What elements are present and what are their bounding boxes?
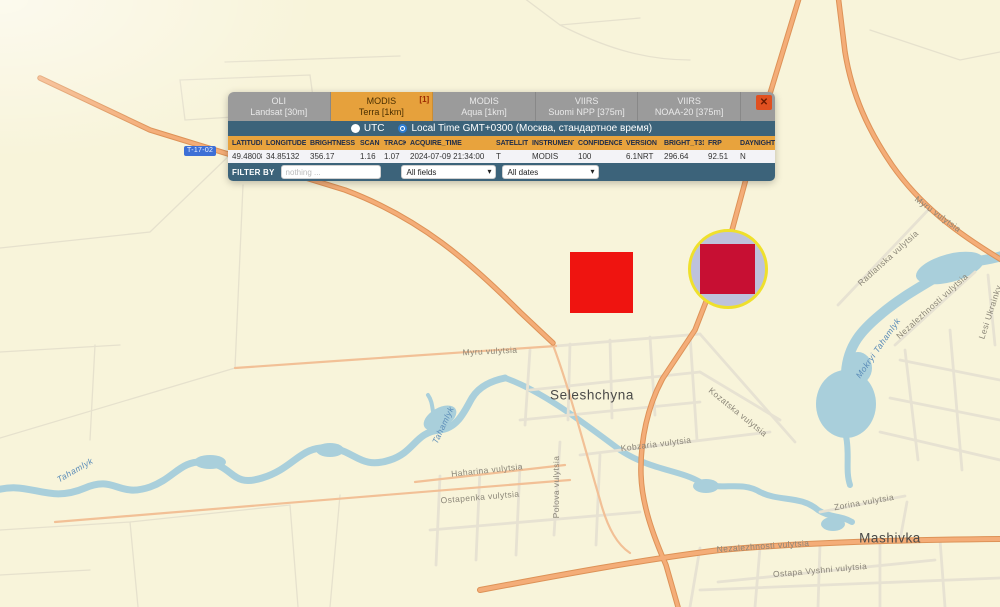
close-cell: ✕ [741, 92, 775, 121]
pass-tag: T-17-02 [184, 146, 216, 156]
tab-modis-terra[interactable]: [1] MODIS Terra [1km] [331, 92, 434, 121]
utc-radio-option[interactable]: UTC [351, 123, 385, 134]
cell-brightness: 356.17 [306, 152, 356, 161]
fire-marker[interactable] [570, 252, 633, 313]
tab-modis-aqua[interactable]: MODIS Aqua [1km] [433, 92, 536, 121]
close-icon[interactable]: ✕ [756, 95, 772, 110]
col-longitude[interactable]: LONGITUDE [262, 140, 306, 147]
cell-frp: 92.51 [704, 152, 736, 161]
filter-row: FILTER BY All fields ▾ All dates ▾ [228, 163, 775, 181]
col-brightness[interactable]: BRIGHTNESS [306, 140, 356, 147]
cell-daynight: N [736, 152, 775, 161]
chevron-down-icon: ▾ [591, 167, 595, 176]
col-satellite[interactable]: SATELLITE [492, 140, 528, 147]
local-time-radio-option[interactable]: Local Time GMT+0300 (Москва, стандартное… [398, 123, 652, 134]
cell-longitude: 34.85132 [262, 152, 306, 161]
table-header-row: LATITUDE LONGITUDE BRIGHTNESS SCAN TRACK… [228, 136, 775, 150]
cell-instrument: MODIS [528, 152, 574, 161]
cell-scan: 1.16 [356, 152, 380, 161]
col-bright-t31[interactable]: BRIGHT_T31 [660, 140, 704, 147]
tab-oli-landsat[interactable]: OLI Landsat [30m] [228, 92, 331, 121]
selected-fire-marker[interactable] [700, 244, 755, 294]
col-confidence[interactable]: CONFIDENCE [574, 140, 622, 147]
col-latitude[interactable]: LATITUDE [228, 140, 262, 147]
col-frp[interactable]: FRP [704, 140, 736, 147]
time-mode-row: UTC Local Time GMT+0300 (Москва, стандар… [228, 121, 775, 136]
sensor-tabbar: OLI Landsat [30m] [1] MODIS Terra [1km] … [228, 92, 775, 121]
radio-icon-utc[interactable] [351, 124, 360, 133]
firms-fire-map-screen: Myru vulytsia Myru vulytsia Radianska vu… [0, 0, 1000, 607]
cell-bright-t31: 296.64 [660, 152, 704, 161]
table-row[interactable]: 49.48008 34.85132 356.17 1.16 1.07 2024-… [228, 150, 775, 163]
cell-acquire-time: 2024-07-09 21:34:00 [406, 152, 492, 161]
radio-icon-local[interactable] [398, 124, 407, 133]
col-scan[interactable]: SCAN [356, 140, 380, 147]
cell-version: 6.1NRT [622, 152, 660, 161]
col-daynight[interactable]: DAYNIGHT [736, 140, 775, 147]
filter-input[interactable] [281, 165, 381, 179]
col-acquire-time[interactable]: ACQUIRE_TIME [406, 140, 492, 147]
chevron-down-icon: ▾ [488, 167, 492, 176]
tab-viirs-snpp[interactable]: VIIRS Suomi NPP [375m] [536, 92, 639, 121]
cell-track: 1.07 [380, 152, 406, 161]
cell-latitude: 49.48008 [228, 152, 262, 161]
cell-confidence: 100 [574, 152, 622, 161]
filter-by-label: FILTER BY [232, 168, 275, 177]
col-version[interactable]: VERSION [622, 140, 660, 147]
col-instrument[interactable]: INSTRUMENT [528, 140, 574, 147]
cell-satellite: T [492, 152, 528, 161]
col-track[interactable]: TRACK [380, 140, 406, 147]
fire-detail-popup: OLI Landsat [30m] [1] MODIS Terra [1km] … [228, 92, 775, 181]
field-filter-select[interactable]: All fields ▾ [401, 165, 496, 179]
tab-count-badge: [1] [419, 94, 429, 105]
tab-viirs-noaa20[interactable]: VIIRS NOAA-20 [375m] [638, 92, 741, 121]
selected-fire-ring[interactable] [688, 229, 768, 309]
date-filter-select[interactable]: All dates ▾ [502, 165, 599, 179]
